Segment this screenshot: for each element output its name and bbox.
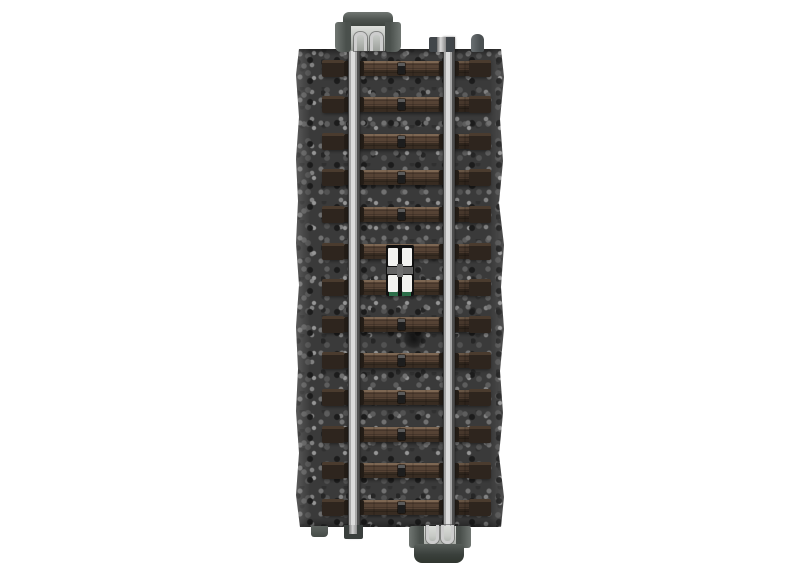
- rail-joiner-wire: [441, 525, 454, 544]
- tie-end-right: [469, 96, 491, 113]
- center-stud-contact: [398, 63, 405, 74]
- rail-joiner-wire: [354, 32, 367, 51]
- rail-end-sliver: [437, 37, 446, 52]
- center-contact-plate: [386, 245, 414, 296]
- center-stud-contact: [398, 136, 405, 147]
- tie-end-left: [322, 60, 344, 77]
- tie-end-right: [469, 389, 491, 406]
- right-rail-end-block: [429, 37, 454, 52]
- image-description: Model railway straight track section wit…: [0, 0, 1, 1]
- tie-end-right: [469, 169, 491, 186]
- tie-end-right: [469, 206, 491, 223]
- center-stud-contact: [398, 172, 405, 183]
- center-stud-contact: [398, 465, 405, 476]
- tie-end-right: [469, 462, 491, 479]
- rail-right: [443, 37, 455, 527]
- tie-end-right: [469, 499, 491, 516]
- left-rail-end-block: [344, 525, 363, 539]
- center-stud-contact: [398, 502, 405, 513]
- tie-end-right: [469, 316, 491, 333]
- center-stud-contact: [398, 209, 405, 220]
- tie-end-right: [469, 352, 491, 369]
- contact-module: [388, 275, 398, 292]
- tie-end-left: [322, 316, 344, 333]
- circuit-board-edge: [402, 292, 411, 296]
- tie-end-left: [322, 426, 344, 443]
- tie-end-left: [322, 389, 344, 406]
- tie-end-right: [469, 426, 491, 443]
- center-stud-contact: [398, 99, 405, 110]
- contact-module: [402, 275, 412, 292]
- center-stud-contact: [398, 392, 405, 403]
- alignment-tab: [311, 526, 328, 537]
- center-stud-contact: [398, 355, 405, 366]
- bottom-connector-bar: [414, 544, 464, 563]
- tie-end-right: [469, 279, 491, 296]
- rail-joiner-wire: [370, 32, 383, 51]
- tie-end-left: [322, 169, 344, 186]
- rail-left: [348, 30, 360, 538]
- tie-end-left: [322, 96, 344, 113]
- center-stud-contact: [398, 319, 405, 330]
- alignment-peg: [471, 34, 484, 52]
- top-connector-arm-right: [385, 22, 401, 52]
- tie-end-left: [322, 133, 344, 150]
- tie-end-right: [469, 60, 491, 77]
- tie-end-left: [322, 462, 344, 479]
- rail-end-sliver: [349, 525, 357, 534]
- rail-joiner-wire: [426, 525, 439, 544]
- tie-end-left: [322, 352, 344, 369]
- tie-end-right: [469, 243, 491, 260]
- tie-end-right: [469, 133, 491, 150]
- center-stud-contact: [398, 429, 405, 440]
- tie-end-left: [322, 206, 344, 223]
- contact-module: [402, 248, 412, 266]
- tie-end-left: [322, 243, 344, 260]
- top-connector-arm-left: [335, 22, 351, 52]
- contact-cross-bar: [397, 264, 403, 277]
- tie-end-left: [322, 499, 344, 516]
- circuit-board-edge: [389, 292, 398, 296]
- product-photo: Model railway straight track section wit…: [0, 0, 800, 570]
- screw-hole: [403, 329, 425, 349]
- tie-end-left: [322, 279, 344, 296]
